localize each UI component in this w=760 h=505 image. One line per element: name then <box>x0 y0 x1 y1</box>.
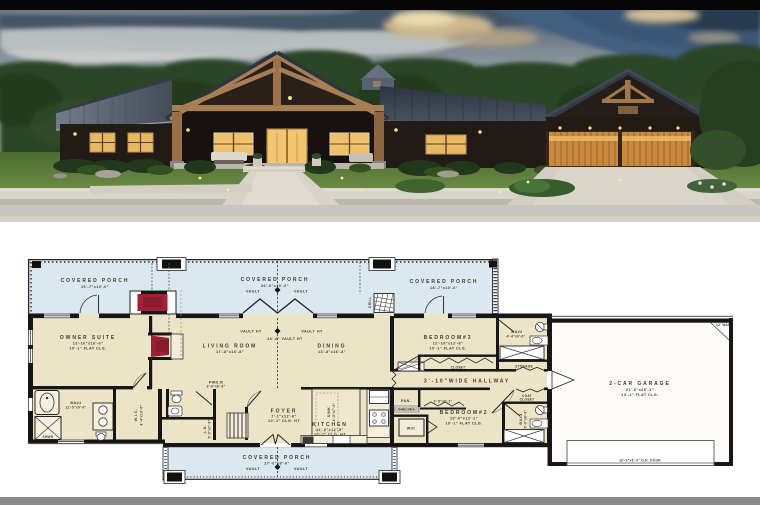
svg-text:13'-8"x16'-8": 13'-8"x16'-8" <box>318 350 346 354</box>
svg-text:COVERED PORCH: COVERED PORCH <box>243 455 312 461</box>
svg-text:WIC: WIC <box>407 427 416 431</box>
svg-text:CLOSET: CLOSET <box>520 398 535 402</box>
svg-text:10'-1" CLG. HT: 10'-1" CLG. HT <box>268 419 300 423</box>
svg-text:VAULT: VAULT <box>294 290 308 294</box>
svg-text:21'-6"x25'-4": 21'-6"x25'-4" <box>626 388 654 392</box>
svg-text:COVERED PORCH: COVERED PORCH <box>410 279 479 285</box>
svg-text:12'-10"x12'-8": 12'-10"x12'-8" <box>433 342 463 346</box>
svg-text:5'-0"x7'-6": 5'-0"x7'-6" <box>208 419 212 438</box>
svg-text:11'-6"x12'-5": 11'-6"x12'-5" <box>316 428 344 432</box>
svg-text:COVERED PORCH: COVERED PORCH <box>241 277 310 283</box>
svg-text:17'-8"x16'-8": 17'-8"x16'-8" <box>216 350 244 354</box>
svg-text:4'-0"x7'-0": 4'-0"x7'-0" <box>332 402 336 421</box>
svg-text:SHELVES: SHELVES <box>398 408 415 412</box>
svg-text:4'-4"x10'-0": 4'-4"x10'-0" <box>140 404 144 425</box>
svg-text:BEDROOM#2: BEDROOM#2 <box>440 410 489 416</box>
svg-text:3'-10"WIDE HALLWAY: 3'-10"WIDE HALLWAY <box>424 379 510 385</box>
svg-text:STORAGE: STORAGE <box>515 365 533 369</box>
svg-text:4'-4"x9'-0": 4'-4"x9'-0" <box>507 335 526 339</box>
svg-text:LIVING ROOM: LIVING ROOM <box>203 344 258 350</box>
svg-text:PAN.: PAN. <box>401 399 411 403</box>
svg-text:13'-10"x16'-0": 13'-10"x16'-0" <box>73 342 103 346</box>
svg-text:10'-1" FLAT CLG.: 10'-1" FLAT CLG. <box>69 347 106 351</box>
svg-text:5'-0"x9'-6": 5'-0"x9'-6" <box>524 409 528 428</box>
svg-text:COVERED PORCH: COVERED PORCH <box>61 278 130 284</box>
svg-text:18'-7"x10'-0": 18'-7"x10'-0" <box>430 286 458 290</box>
svg-text:7'-1"x12'-0": 7'-1"x12'-0" <box>271 415 296 419</box>
svg-text:DINING: DINING <box>318 344 347 350</box>
svg-text:VAULT: VAULT <box>246 290 260 294</box>
svg-text:VAULT: VAULT <box>246 467 260 471</box>
svg-text:10'-1" FLAT CLG.: 10'-1" FLAT CLG. <box>621 393 658 397</box>
svg-text:SHWR: SHWR <box>43 435 54 439</box>
svg-text:SINK: SINK <box>327 407 331 418</box>
svg-text:26'-6" VAULT HT: 26'-6" VAULT HT <box>267 337 303 341</box>
svg-text:W.I.C.: W.I.C. <box>134 409 138 422</box>
svg-text:10'-0"x12'-1": 10'-0"x12'-1" <box>450 417 478 421</box>
svg-text:OWNER SUITE: OWNER SUITE <box>60 335 116 341</box>
svg-text:L.D.: L.D. <box>203 425 207 434</box>
svg-text:12' WAL: 12' WAL <box>716 323 730 327</box>
svg-text:BA#3: BA#3 <box>519 413 523 424</box>
svg-text:VAULT HT: VAULT HT <box>301 330 323 334</box>
svg-text:BEDROOM#3: BEDROOM#3 <box>424 335 473 341</box>
svg-text:CLOSET: CLOSET <box>451 366 466 370</box>
svg-text:GRILL: GRILL <box>368 297 372 308</box>
svg-text:16'-7"x10'-0": 16'-7"x10'-0" <box>81 285 109 289</box>
svg-text:3'-0"x6'-8": 3'-0"x6'-8" <box>207 385 226 389</box>
svg-text:10'-1" FLAT CLG.: 10'-1" FLAT CLG. <box>445 422 482 426</box>
svg-text:VAULT: VAULT <box>294 467 308 471</box>
svg-text:11'-5"x9'-0": 11'-5"x9'-0" <box>66 406 87 410</box>
svg-text:27'-0"x8'-0": 27'-0"x8'-0" <box>264 462 289 466</box>
svg-text:26'-0"x10'-0": 26'-0"x10'-0" <box>261 284 289 288</box>
svg-text:16'-0"x8'-0" O.H. DOOR: 16'-0"x8'-0" O.H. DOOR <box>619 459 661 463</box>
svg-text:10'-1" FLAT CLG.: 10'-1" FLAT CLG. <box>429 347 466 351</box>
svg-text:2-CAR GARAGE: 2-CAR GARAGE <box>609 381 670 387</box>
svg-text:BA#1: BA#1 <box>70 401 81 405</box>
svg-text:BA#2: BA#2 <box>511 330 522 334</box>
svg-text:10'-1" CLG. HT: 10'-1" CLG. HT <box>314 433 346 437</box>
svg-text:VAULT HT: VAULT HT <box>240 330 262 334</box>
